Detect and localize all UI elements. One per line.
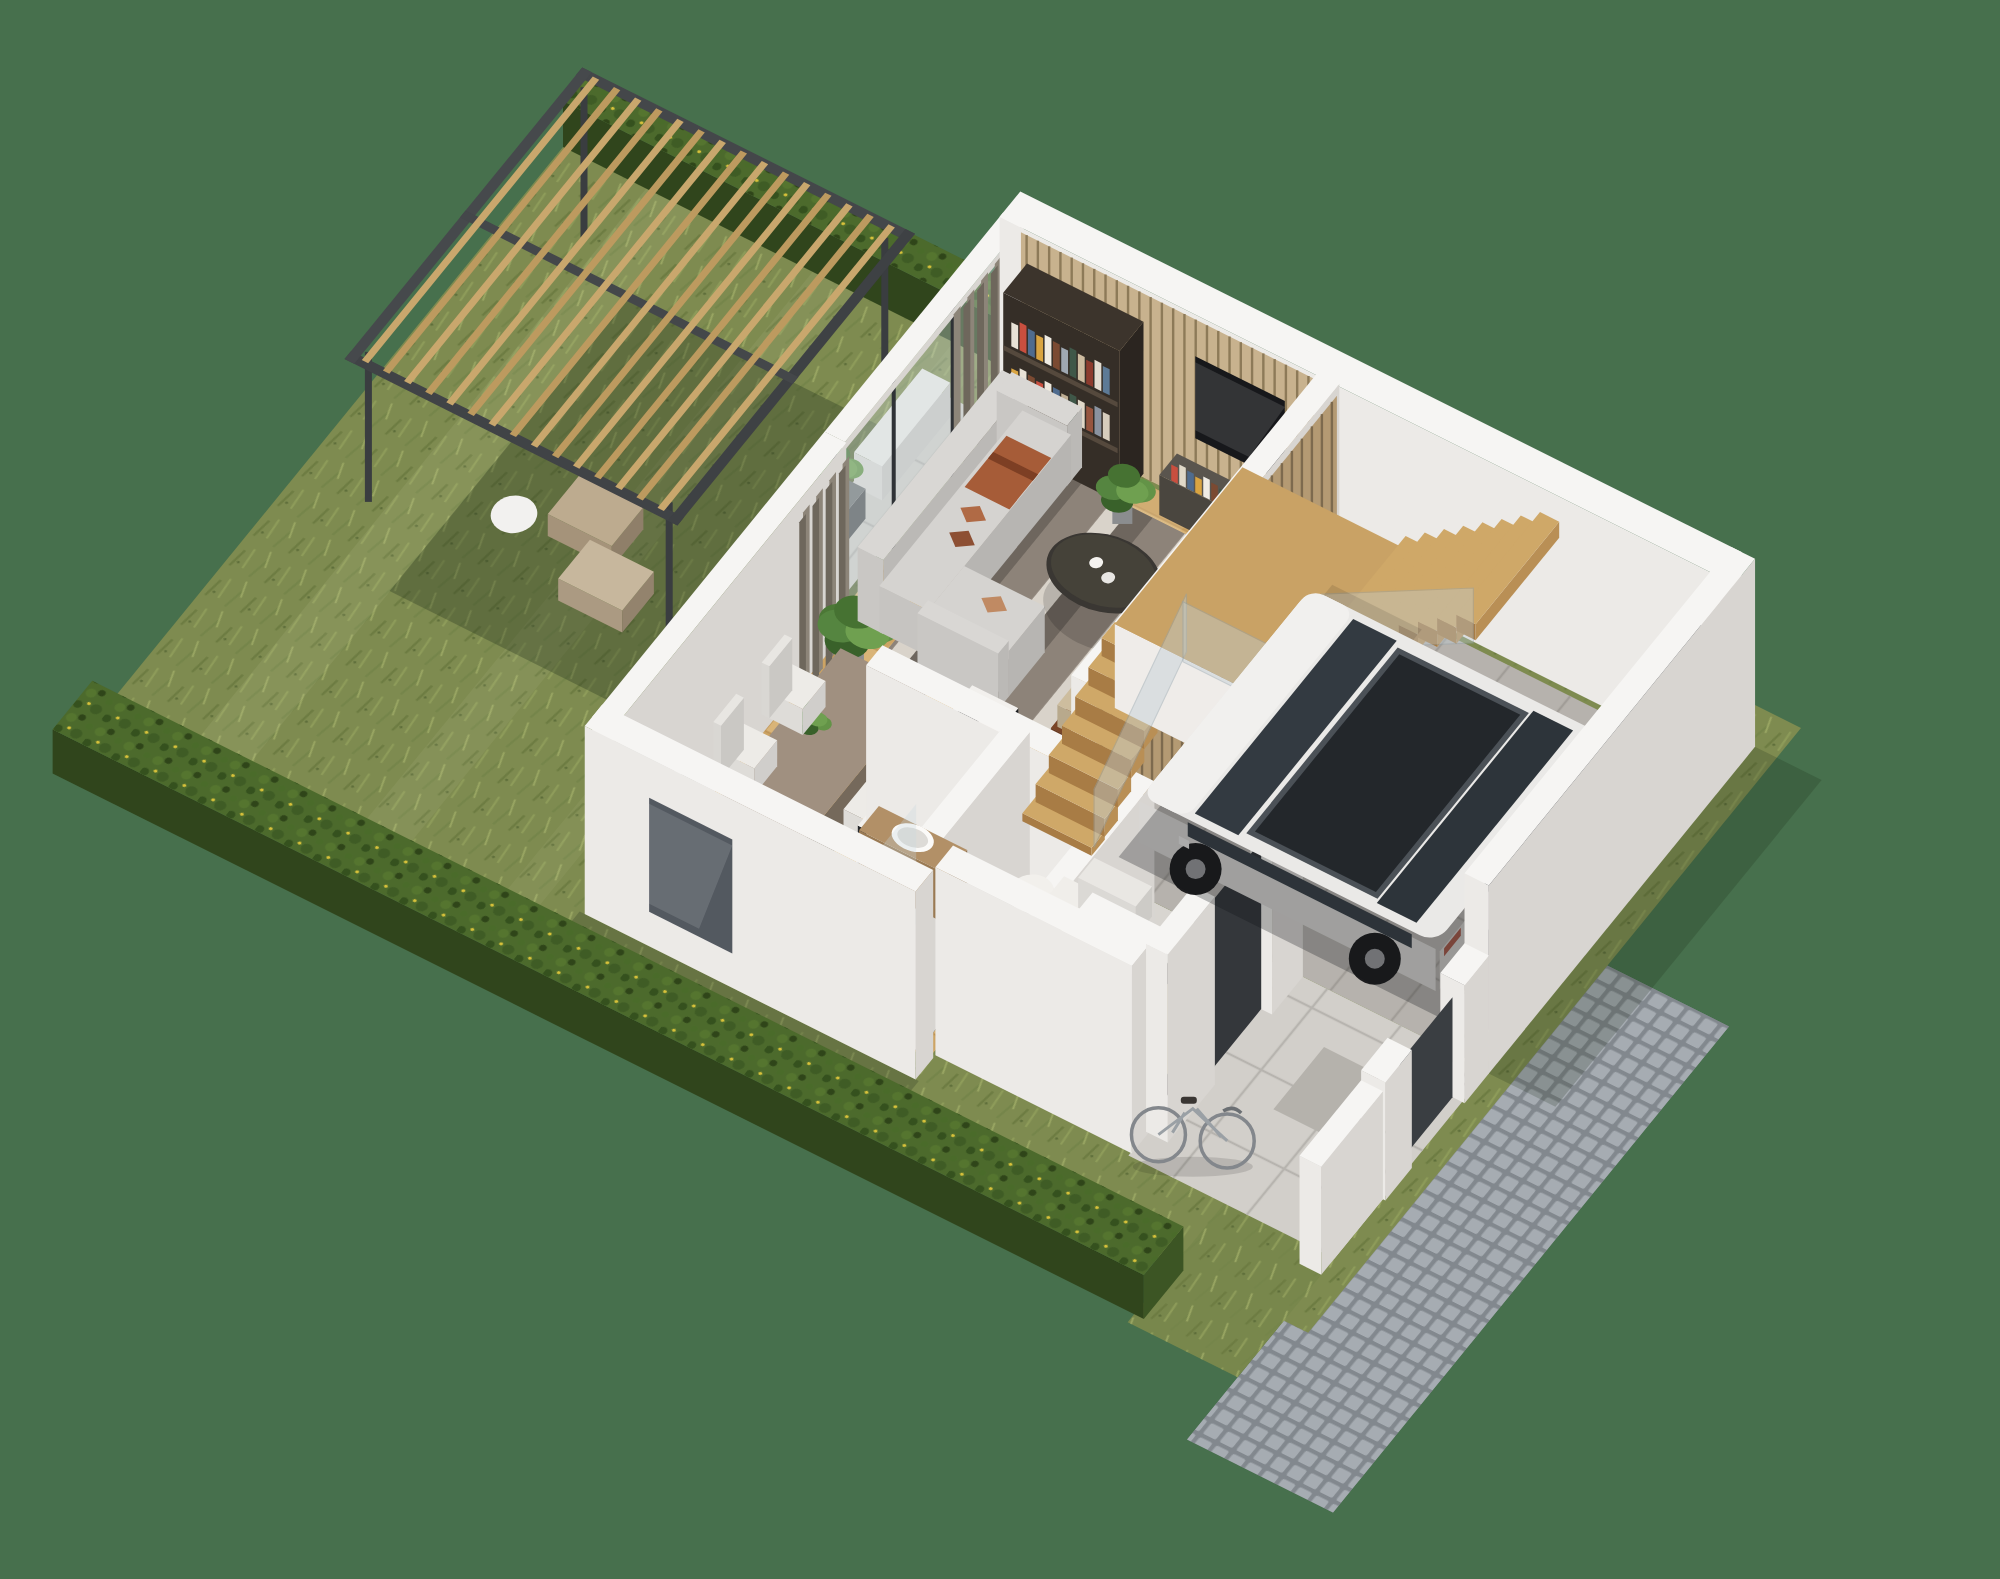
pergola-post-3 xyxy=(365,352,372,502)
8-fold xyxy=(812,498,819,686)
bookshelf-books-top-item xyxy=(1011,322,1018,349)
bookshelf-books-mid-item xyxy=(1086,406,1093,433)
bookshelf-books-top-item xyxy=(1103,366,1110,395)
bookshelf-books-top-item xyxy=(1036,335,1043,362)
26-slat xyxy=(1161,303,1163,487)
dining-chair-1-back-face-sw xyxy=(762,663,770,719)
bookshelf-books-mid-item xyxy=(1095,406,1102,437)
console-books-item xyxy=(1171,465,1178,484)
console-books-item xyxy=(1187,471,1194,492)
console-books-item xyxy=(1195,477,1202,496)
front-door-wall-south-face-sw xyxy=(1146,944,1168,1143)
26-slat xyxy=(1149,297,1151,481)
bookshelf-books-top-item xyxy=(1086,360,1093,387)
bookshelf-books-top-item xyxy=(1045,335,1052,366)
floorplan-render xyxy=(0,0,2000,1579)
wall-southwest-main-face-se xyxy=(916,870,934,1080)
console-books-item xyxy=(1179,465,1186,488)
bookshelf-books-top-item xyxy=(1095,360,1102,391)
bookshelf-books-mid-item xyxy=(1103,412,1110,441)
fence-wall-south-face-sw xyxy=(1300,1156,1322,1275)
bookshelf-books-top-item xyxy=(1078,353,1085,382)
bookshelf-books-top-item xyxy=(1053,341,1060,370)
bicycle-saddle xyxy=(1181,1097,1197,1104)
isometric-house-svg xyxy=(0,0,2000,1579)
bookshelf-books-top-item xyxy=(1070,347,1077,378)
console-books-item xyxy=(1203,477,1210,500)
bookshelf-books-top-item xyxy=(1028,329,1035,358)
bookshelf-books-top-item xyxy=(1061,347,1068,374)
bookshelf-books-top-item xyxy=(1020,322,1027,353)
